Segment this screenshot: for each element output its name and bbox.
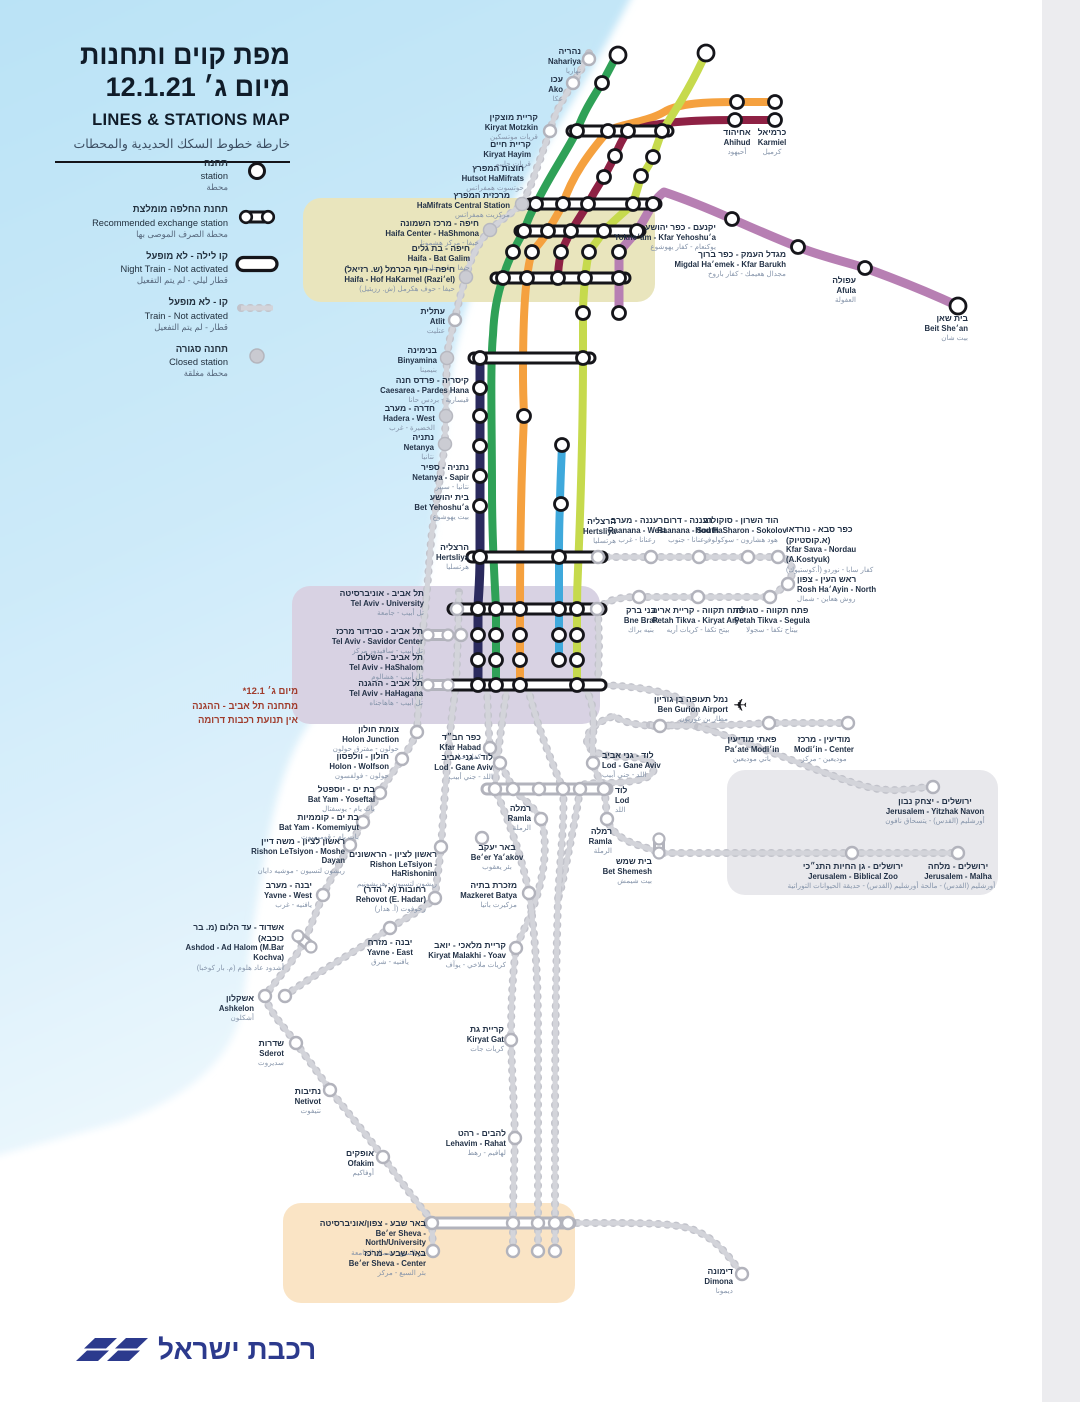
station-name-ar: بنيه براك (566, 625, 716, 634)
station-name-he: נמל תעופה בן גוריון (654, 694, 728, 705)
station-name-he: בנימינה (398, 345, 437, 356)
station-name-he: להבים - רהט (446, 1128, 506, 1139)
station-dot (490, 629, 503, 642)
station-name-en: Kiryat Gat (467, 1035, 504, 1045)
legend-ar-label: محطة (60, 182, 228, 193)
station-name-en: Mazkeret Batya (460, 891, 517, 901)
inactive-station-dot (317, 889, 329, 901)
inactive-station-dot (449, 314, 461, 326)
station-label-lehavim-rahat: להבים - רהטLehavim - Rahatلهافيم - رهط (446, 1128, 506, 1157)
station-name-en: Rishon LeTsiyon - HaRishonim (325, 860, 437, 879)
closed-station-dot (516, 198, 529, 211)
station-name-he: אשדוד - עד הלום (מ. בר כוכבא) (172, 922, 284, 943)
airplane-icon: ✈ (733, 696, 747, 716)
legend-he-label: קו לילה - לא מופעל (60, 251, 228, 263)
station-dot (557, 198, 570, 211)
station-name-he: כרמיאל (697, 127, 847, 138)
station-name-he: מזכרת בתיה (460, 880, 517, 891)
station-name-he: בית יהושע (414, 492, 469, 503)
station-label-binyamina: בנימינהBinyaminaبنيمينا (398, 345, 437, 374)
station-name-ar: روش هعاين - شمال (797, 594, 876, 603)
station-name-en: Kiryat Motzkin (485, 123, 538, 133)
inactive-station-dot (587, 757, 599, 769)
inactive-station-dot (396, 753, 408, 765)
station-label-jerusalem-malha: ירושלים - מלחהJerusalem - Malhaأورشليم (… (883, 861, 1033, 890)
station-name-ar: بئر يعقوب (422, 862, 572, 871)
station-name-ar: أورشليم (القدس) - مالحة (883, 881, 1033, 890)
inactive-station-dot (535, 813, 547, 825)
legend-he-label: תחנת החלפה מומלצת (60, 204, 228, 216)
station-name-he: אשקלון (219, 993, 254, 1004)
station-name-en: Holon - Wolfson (329, 762, 389, 772)
station-name-he: דימונה (704, 1266, 733, 1277)
station-name-he: באר שבע - מרכז (349, 1248, 426, 1259)
station-name-he: צומת חולון (333, 724, 399, 735)
station-label-bet-yehoshua: בית יהושעBet Yehoshu׳aبيت يهوشوع (414, 492, 469, 521)
station-name-en: Afula (832, 286, 856, 296)
inactive-station-dot (374, 787, 386, 799)
inactive-station-dot (598, 783, 610, 795)
station-label-kfar-sava: כפר סבא - נורדאו (א.קוסטיוק)Kfar Sava - … (786, 524, 898, 574)
dumbbell-station-dot (654, 848, 665, 859)
station-dot (792, 241, 805, 254)
legend-item-closed: תחנה סגורהClosed stationمحطة مغلقة (60, 344, 280, 379)
station-dot (553, 551, 566, 564)
closed-station-dot (484, 224, 497, 237)
station-name-ar: بيت شان (925, 333, 968, 342)
station-name-en: Hutsot HaMifrats (462, 174, 524, 184)
station-name-ar: أشكلون (219, 1013, 254, 1022)
station-dot (490, 603, 503, 616)
station-dot (698, 45, 714, 61)
inactive-station-dot (601, 813, 613, 825)
station-label-holon-junction: צומת חולוןHolon Junctionحولون - مفترق حو… (333, 724, 399, 753)
station-label-netanya-sapir: נתניה - ספירNetanya - Sapirنتانيا - سبير (412, 462, 469, 491)
station-name-ar: ديمونا (704, 1286, 733, 1295)
station-name-en: Sderot (258, 1049, 284, 1059)
legend-text: תחנהstationمحطة (60, 158, 234, 193)
exchange-icon (234, 204, 280, 228)
station-label-beer-yaakov: באר יעקבBe׳er Ya׳akovبئر يعقوب (422, 842, 572, 871)
station-name-ar: حيفا - حوف هكرمل (ش. رزيئيل) (344, 284, 455, 293)
station-dot (622, 125, 635, 138)
station-dot (609, 150, 622, 163)
station-dot (474, 470, 487, 483)
station-name-he: תל אביב - השלום (349, 652, 423, 663)
station-name-he: חיפה - חוף הכרמל (ש. רזיאל) (344, 264, 455, 275)
station-name-en: Lod - Gane Aviv (602, 761, 661, 771)
station-dot (490, 654, 503, 667)
dumbbell-station-dot (423, 630, 434, 641)
closed-station-dot (441, 352, 454, 365)
station-dot (553, 629, 566, 642)
purple-line (619, 192, 958, 313)
station-name-en: Kfar Sava - Nordau (A.Kostyuk) (786, 545, 898, 564)
station-name-he: שדרות (258, 1038, 284, 1049)
station-dot (731, 96, 744, 109)
station-dot (526, 246, 539, 259)
station-label-ako: עכוAkoعكا (548, 74, 563, 103)
station-dot (577, 307, 590, 320)
page-edge-strip (1042, 0, 1080, 1402)
station-dot (596, 77, 609, 90)
station-name-ar: اللد - جني أبيب (602, 770, 661, 779)
inactive-station-dot (693, 551, 705, 563)
station-name-en: Kfar Habad (439, 743, 481, 753)
station-name-he: נהריה (548, 46, 581, 57)
closed-station-dot (439, 438, 452, 451)
station-name-he: הרצליה (436, 542, 469, 553)
station-label-hamifrats-central: מרכזית המפרץHaMifrats Central Stationمرك… (417, 190, 510, 219)
legend-en-label: Closed station (60, 356, 228, 368)
station-dot (577, 352, 590, 365)
station-dot (582, 198, 595, 211)
station-dot (472, 654, 485, 667)
station-dot (474, 382, 487, 395)
logo-text: רכבת ישראל (158, 1334, 316, 1366)
station-dot (555, 498, 568, 511)
station-label-beit-shean: בית שאןBeit She׳anبيت شان (925, 313, 968, 342)
inactive-station-dot (567, 77, 579, 89)
title-hebrew-line1: מפת קוים ותחנות (55, 40, 290, 72)
station-name-ar: بنيمينا (398, 365, 437, 374)
station-label-lod-gane-aviv-e: לוד - גני אביבLod - Gane Avivاللد - جني … (602, 750, 661, 779)
station-name-en: Nahariya (548, 57, 581, 67)
station-name-ar: نتانيا - سبير (412, 482, 469, 491)
station-name-he: תל אביב - אוניברסיטה (340, 588, 424, 599)
station-name-en: Binyamina (398, 356, 437, 366)
inactive-station-dot (509, 1132, 521, 1144)
inactive-station-dot (557, 783, 569, 795)
station-dot (635, 170, 648, 183)
station-dot (518, 410, 531, 423)
station-name-he: חולון - וולפסון (329, 751, 389, 762)
station-name-he: באר יעקב (422, 842, 572, 853)
station-name-he: מגדל העמק - כפר ברוך (675, 249, 787, 260)
station-name-ar: مزكيرت باتيا (460, 900, 517, 909)
inactive-station-dot (532, 1217, 544, 1229)
station-label-jerusalem-navon: ירושלים - יצחק נבוןJerusalem - Yitzhak N… (860, 796, 1010, 825)
station-label-bne-brak: בני ברקBne Brakبنيه براك (566, 605, 716, 634)
station-name-he: עתלית (420, 306, 445, 317)
station-dot (769, 96, 782, 109)
inactive-station-dot (429, 892, 441, 904)
inactive-station-dot (742, 551, 754, 563)
station-name-en: Ashkelon (219, 1004, 254, 1014)
station-name-he: רמלה (589, 826, 612, 837)
station-dot (571, 654, 584, 667)
station-name-en: Tel Aviv - University (340, 599, 424, 609)
station-label-kiryat-gat: קריית גתKiryat Gatكريات جات (467, 1024, 504, 1053)
station-name-en: Ramla (589, 837, 612, 847)
station-label-ramla-w: רמלהRamlaالرملة (508, 803, 531, 832)
station-label-beer-sheva-center: באר שבע - מרכזBe׳er Sheva - Centerبئر ال… (349, 1248, 426, 1277)
station-label-afula: עפולהAfulaالعفولة (832, 275, 856, 304)
station-name-he: לוד (615, 785, 629, 796)
inactive-station-dot (259, 990, 271, 1002)
station-label-netivot: נתיבותNetivotنتيفوت (295, 1086, 321, 1115)
station-name-ar: عتليت (420, 326, 445, 335)
title-hebrew-line2: מיום ג׳ 12.1.21 (55, 72, 290, 104)
station-label-yavne-west: יבנה - מערבYavne - Westيافنيه - غرب (264, 880, 312, 909)
station-label-atlit: עתליתAtlitعتليت (420, 306, 445, 335)
station-dot (571, 125, 584, 138)
inactive-station-dot (772, 551, 784, 563)
israel-railways-logo: רכבת ישראל (74, 1330, 316, 1370)
legend-en-label: Recommended exchange station (60, 217, 228, 229)
dumbbell-station-dot (443, 680, 454, 691)
legend-he-label: תחנה סגורה (60, 344, 228, 356)
station-dot (474, 440, 487, 453)
station-dot (726, 213, 739, 226)
station-name-ar: كرميل (697, 147, 847, 156)
station-label-hof-hakarmel: חיפה - חוף הכרמל (ש. רזיאל)Haifa - Hof H… (344, 264, 455, 293)
inactive-station-dot (782, 578, 794, 590)
station-name-en: Atlit (420, 317, 445, 327)
station-dot (552, 272, 565, 285)
station-name-en: Haifa - Hof HaKarmel (Razi׳el) (344, 275, 455, 285)
dumbbell-station-dot (423, 680, 434, 691)
legend-text: תחנה סגורהClosed stationمحطة مغلقة (60, 344, 234, 379)
station-name-ar: مطار بن غوريون (654, 714, 728, 723)
station-name-en: Lod (615, 796, 629, 806)
lines-stations-map-poster: מפת קוים ותחנות מיום ג׳ 12.1.21 LINES & … (0, 0, 1080, 1402)
title-english: LINES & STATIONS MAP (55, 111, 290, 130)
station-dot (769, 114, 782, 127)
station-name-he: יקנעם - כפר יהושע (614, 222, 716, 233)
inactive-station-dot (290, 1037, 302, 1049)
station-dot (472, 679, 485, 692)
station-name-he: עפולה (832, 275, 856, 286)
station-name-he: ראשון לציון - הראשונים (325, 849, 437, 860)
station-name-he: אופקים (346, 1148, 374, 1159)
map-legend: תחנהstationمحطةתחנת החלפה מומלצתRecommen… (60, 158, 280, 390)
inactive-station-dot (489, 783, 501, 795)
station-name-he: לוד - גני אביב (434, 752, 493, 763)
station-name-en: Ramla (508, 814, 531, 824)
station-name-en: Rosh Ha׳Ayin - North (797, 585, 876, 595)
station-label-netanya: נתניהNetanyaنتانيا (404, 432, 434, 461)
station-name-en: Modi׳in - Center (749, 745, 899, 755)
station-name-ar: يافنيه - غرب (264, 900, 312, 909)
station-label-holon-wolfson: חולון - וולפסוןHolon - Wolfsonحولون - فو… (329, 751, 389, 780)
station-name-ar: كريات جات (467, 1044, 504, 1053)
station-dot (579, 272, 592, 285)
station-name-ar: أوفاكيم (346, 1168, 374, 1177)
station-label-tlv-hahagana: תל אביב - ההגנהTel Aviv - HaHaganaتل أبي… (349, 678, 423, 707)
station-dot (474, 500, 487, 513)
station-name-ar: أشدود عاد هلوم (م. بار كوخبا) (172, 963, 284, 972)
station-name-en: Lod - Gane Aviv (434, 763, 493, 773)
legend-he-label: תחנה (60, 158, 228, 170)
station-dot (497, 272, 510, 285)
station-dot (627, 198, 640, 211)
station-name-ar: هرتسليا (436, 562, 469, 571)
station-name-en: Be׳er Ya׳akov (422, 853, 572, 863)
inactive-station-dot (532, 1245, 544, 1257)
legend-text: תחנת החלפה מומלצתRecommended exchange st… (60, 204, 234, 239)
station-name-en: Bat Yam - Yoseftal (308, 795, 375, 805)
station-name-en: HaMifrats Central Station (417, 201, 510, 211)
station-dot (542, 225, 555, 238)
inactive-station-dot (763, 717, 775, 729)
station-dot (472, 603, 485, 616)
station-label-bet-shemesh: בית שמשBet Shemeshبيت شيمش (603, 856, 652, 885)
station-name-en: Bne Brak (566, 616, 716, 626)
legend-item-grayline: קו - לא מופעלTrain - Not activatedقطار -… (60, 297, 280, 332)
inactive-station-dot (574, 783, 586, 795)
station-dot (521, 272, 534, 285)
station-name-ar: بيت يهوشوع (414, 512, 469, 521)
station-name-he: ירושלים - יצחק נבון (860, 796, 1010, 807)
station-name-en: Jerusalem - Yitzhak Navon (860, 807, 1010, 817)
station-name-he: בת ים - קוממיות (279, 812, 359, 823)
inactive-station-dot (592, 551, 604, 563)
station-dot (565, 225, 578, 238)
annotation-line: אין תנועת רכבות דרומה (192, 714, 298, 729)
station-name-ar: بيت شيمش (603, 876, 652, 885)
station-name-ar: رحوفوت (أ. هدار) (356, 904, 426, 913)
station-name-ar: الرملة (508, 823, 531, 832)
inactive-station-dot (279, 990, 291, 1002)
station-dot (553, 654, 566, 667)
station-name-en: Be׳er Sheva - North/University (314, 1229, 426, 1248)
station-name-en: Ofakim (346, 1159, 374, 1169)
title-arabic: خارطة خطوط السكك الحديدية والمحطات (55, 136, 290, 151)
map-title: מפת קוים ותחנות מיום ג׳ 12.1.21 LINES & … (55, 40, 290, 163)
station-label-dimona: דימונהDimonaديمونا (704, 1266, 733, 1295)
station-name-he: חיפה - מרכז השמונה (385, 218, 479, 229)
station-name-en: Bat Yam - Komemiyut (279, 823, 359, 833)
station-dot (530, 198, 543, 211)
station-dot (555, 246, 568, 259)
closed-station-dot (460, 271, 473, 284)
station-label-karmiel: כרמיאלKarmielكرميل (697, 127, 847, 156)
legend-en-label: Train - Not activated (60, 310, 228, 322)
station-name-ar: موديعين - مركز (749, 754, 899, 763)
inactive-station-dot (411, 726, 423, 738)
station-name-en: Migdal Ha׳emek - Kfar Barukh (675, 260, 787, 270)
station-dot (514, 654, 527, 667)
station-name-en: Yokne׳am - Kfar Yehoshu׳a (614, 233, 716, 243)
station-name-en: Netanya (404, 443, 434, 453)
station-name-he: כפר חב״ד (439, 732, 481, 743)
legend-he-label: קו - לא מופעל (60, 297, 228, 309)
inactive-station-dot (927, 781, 939, 793)
station-name-ar: مجدال هعيمك - كفار باروخ (675, 269, 787, 278)
station-name-ar: الرملة (589, 846, 612, 855)
station-dot (613, 272, 626, 285)
inactive-station-dot (324, 1084, 336, 1096)
station-dot (571, 679, 584, 692)
legend-en-label: Night Train - Not activated (60, 263, 228, 275)
station-dot (507, 246, 520, 259)
station-name-en: Ben Gurion Airport (654, 705, 728, 715)
station-name-he: קיסריה - פרדס חנה (380, 375, 469, 386)
inactive-station-dot (549, 1245, 561, 1257)
inactive-station-dot (533, 783, 545, 795)
station-name-ar: اللد (615, 805, 629, 814)
station-name-en: Dimona (704, 1277, 733, 1287)
station-name-en: Jerusalem - Malha (883, 872, 1033, 882)
station-dot (553, 603, 566, 616)
station-name-ar: تل أبيب - جامعة (340, 608, 424, 617)
station-name-he: מרכזית המפרץ (417, 190, 510, 201)
station-label-sderot: שדרותSderotسديروت (258, 1038, 284, 1067)
inactive-station-dot (507, 783, 519, 795)
station-dot (556, 439, 569, 452)
station-label-hutsot-hamifrats: חוצות המפרץHutsot HaMifratsحوتسوت همفرات… (462, 163, 524, 192)
inactive-station-dot (427, 1245, 439, 1257)
station-label-modiin-center: מודיעין - מרכזModi׳in - Centerموديعين - … (749, 734, 899, 763)
inactive-station-dot (510, 942, 522, 954)
station-name-en: Bet Shemesh (603, 867, 652, 877)
station-name-ar: لهافيم - رهط (446, 1148, 506, 1157)
inactive-station-dot (377, 1151, 389, 1163)
station-label-migdal-haemek: מגדל העמק - כפר ברוךMigdal Ha׳emek - Kfa… (675, 249, 787, 278)
station-name-he: חיפה - בת גלים (408, 243, 470, 254)
station-name-he: נתיבות (295, 1086, 321, 1097)
station-name-ar: حولون - فولفسون (329, 771, 389, 780)
inactive-station-dot (736, 1268, 748, 1280)
inactive-station-dot (692, 591, 704, 603)
inactive-station-dot (842, 717, 854, 729)
night-icon (234, 251, 280, 275)
station-label-nahariya: נהריהNahariyaنهاريا (548, 46, 581, 75)
station-dot (610, 47, 626, 63)
closed-icon (234, 344, 280, 366)
station-name-ar: بئر السبع - مركز (349, 1268, 426, 1277)
station-dot (950, 298, 966, 314)
station-label-tlv-hashalom: תל אביב - השלוםTel Aviv - HaShalomتل أبي… (349, 652, 423, 681)
station-name-ar: اللد - جني أبيب (434, 772, 493, 781)
israel-railways-logo-icon (74, 1330, 148, 1370)
station-name-en: Karmiel (697, 138, 847, 148)
station-name-he: קריית גת (467, 1024, 504, 1035)
annotation-line: מיום ג׳ 12.1* (192, 685, 298, 700)
station-name-he: עכו (548, 74, 563, 85)
station-name-he: יבנה - מערב (264, 880, 312, 891)
inactive-station-dot (505, 1034, 517, 1046)
station-dot (474, 410, 487, 423)
inactive-station-dot (846, 847, 858, 859)
station-dot (514, 603, 527, 616)
station-name-he: חוצות המפרץ (462, 163, 524, 174)
station-name-en: Haifa Center - HaShmona (385, 229, 479, 239)
station-name-en: Ashdod - Ad Halom (M.Bar Kochva) (172, 943, 284, 962)
inactive-station-dot (507, 1245, 519, 1257)
inactive-station-dot (645, 551, 657, 563)
legend-ar-label: محطة الصرف الموصى بها (60, 229, 228, 240)
station-label-mazkeret-batya: מזכרת בתיהMazkeret Batyaمزكيرت باتيا (460, 880, 517, 909)
station-dot (602, 125, 615, 138)
inactive-station-dot (426, 1217, 438, 1229)
station-name-he: כפר סבא - נורדאו (א.קוסטיוק) (786, 524, 898, 545)
inactive-station-dot (764, 591, 776, 603)
dumbbell-station-dot (293, 931, 304, 942)
station-name-he: נתניה - ספיר (412, 462, 469, 473)
station-name-en: Bet Yehoshu׳a (414, 503, 469, 513)
station-name-ar: نتانيا (404, 452, 434, 461)
station-dot (472, 629, 485, 642)
closed-station-dot (440, 410, 453, 423)
station-dot (514, 679, 527, 692)
station-dot (514, 629, 527, 642)
station-name-he: לוד - גני אביב (602, 750, 661, 761)
station-label-hertsliya: הרצליהHertsliyaهرتسليا (436, 542, 469, 571)
dumbbell-station-dot (443, 630, 454, 641)
inactive-station-dot (544, 125, 556, 137)
